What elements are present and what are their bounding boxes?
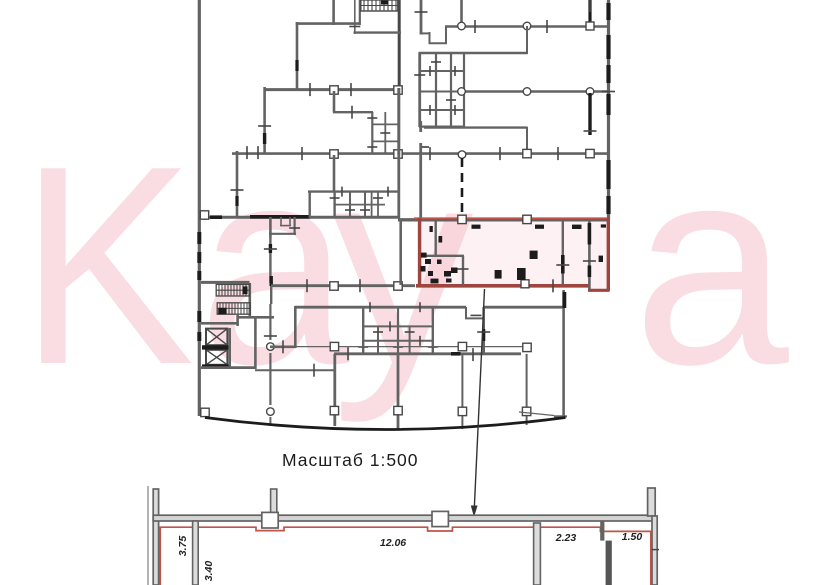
svg-text:K: K <box>20 107 195 424</box>
svg-text:12.06: 12.06 <box>380 537 406 549</box>
svg-text:3.40: 3.40 <box>203 561 215 582</box>
svg-text:a: a <box>633 107 791 424</box>
svg-text:1.50: 1.50 <box>622 531 643 543</box>
svg-text:Масштаб 1:500: Масштаб 1:500 <box>282 450 419 470</box>
svg-text:3.75: 3.75 <box>177 536 189 557</box>
svg-text:2.23: 2.23 <box>555 532 577 544</box>
